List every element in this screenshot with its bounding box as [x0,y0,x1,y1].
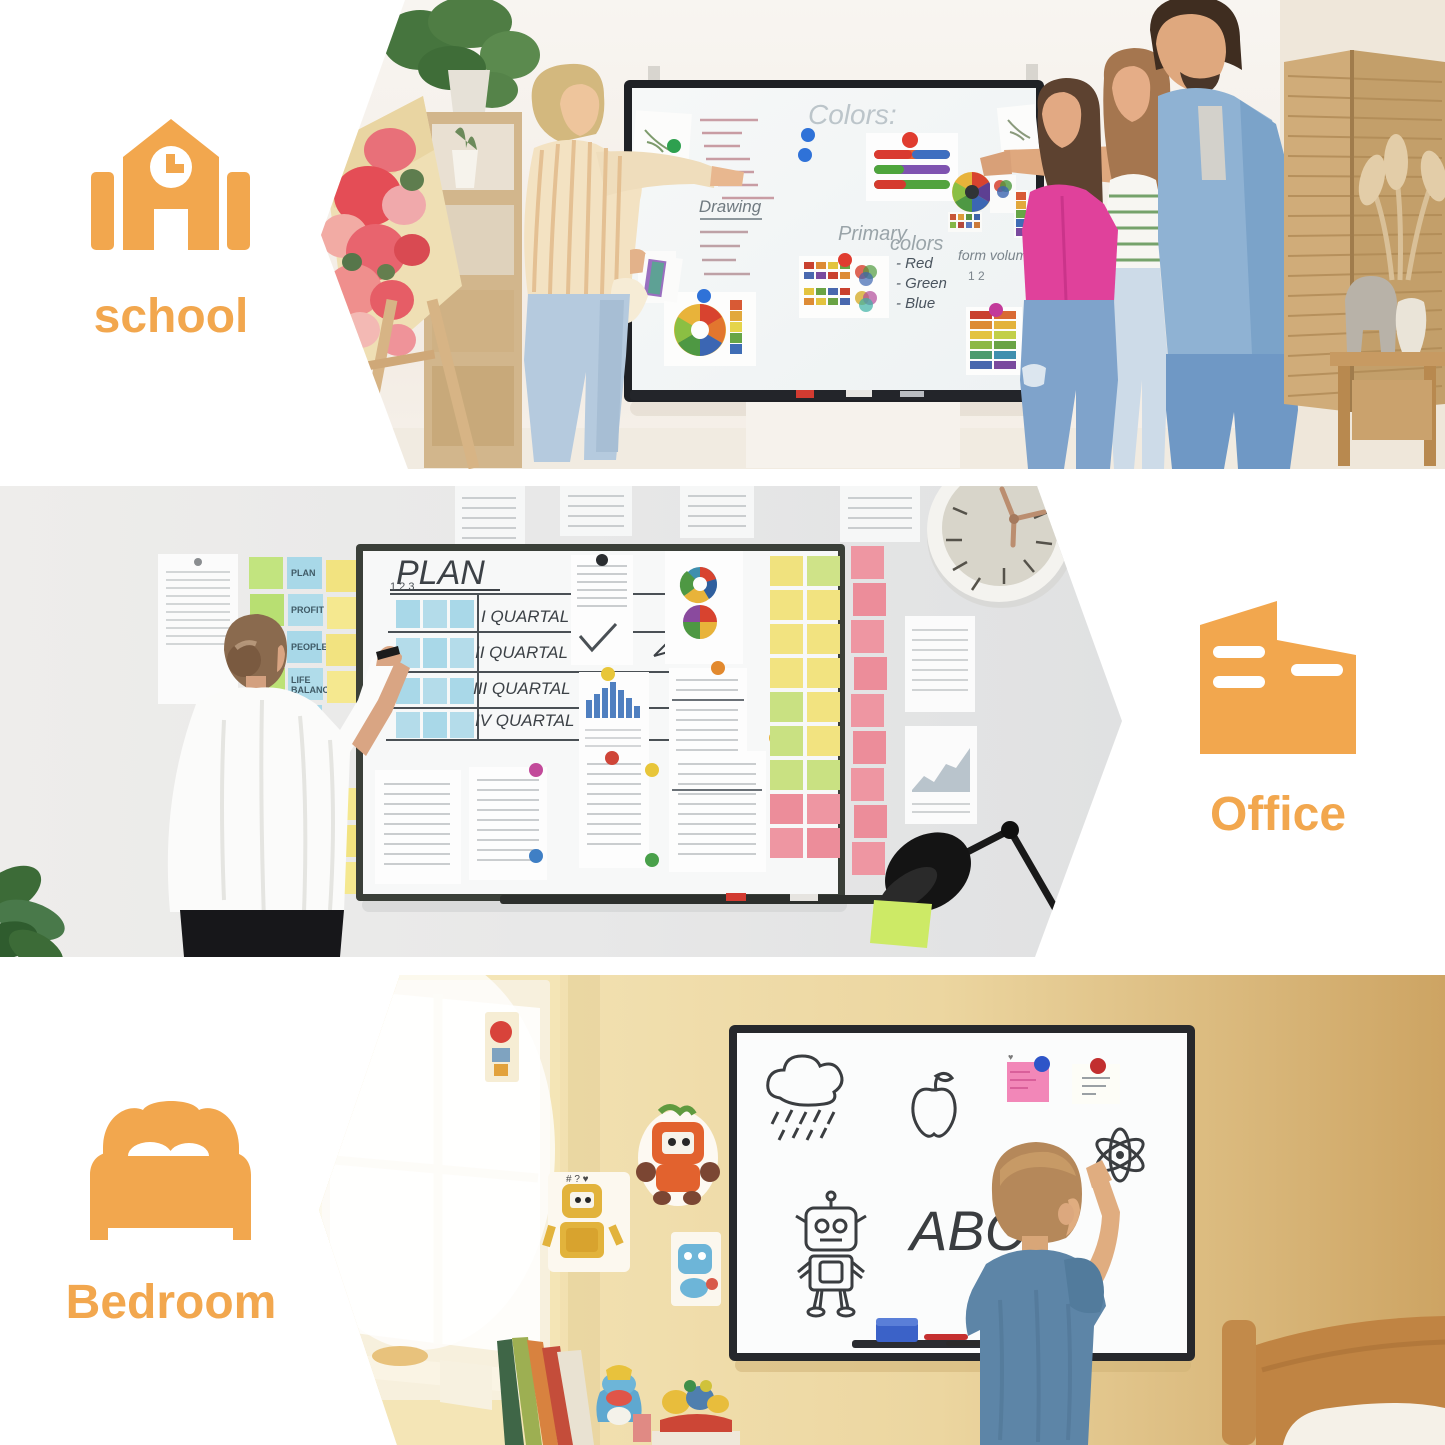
svg-text:school: school [94,290,249,343]
svg-text:PROFIT: PROFIT [291,605,325,615]
svg-text:- Green: - Green [896,275,947,292]
svg-text:II QUARTAL: II QUARTAL [475,643,568,662]
svg-text:Drawing: Drawing [699,197,762,216]
svg-text:colors: colors [890,233,943,255]
svg-text:Colors:: Colors: [808,99,897,130]
svg-text:1 2 3: 1 2 3 [390,581,414,593]
svg-text:♥: ♥ [1008,1052,1013,1062]
svg-text:- Red: - Red [896,255,933,272]
svg-text:1 2: 1 2 [968,269,985,283]
svg-text:Office: Office [1210,788,1346,841]
svg-text:PEOPLE: PEOPLE [291,642,328,652]
svg-text:III QUARTAL: III QUARTAL [473,679,571,698]
svg-text:I QUARTAL: I QUARTAL [481,607,569,626]
svg-text:PLAN: PLAN [291,568,316,578]
svg-text:- Blue: - Blue [896,295,935,312]
svg-text:Bedroom: Bedroom [66,1276,277,1329]
svg-text:LIFE: LIFE [291,675,311,685]
svg-text:# ? ♥: # ? ♥ [566,1174,589,1185]
svg-text:IV QUARTAL: IV QUARTAL [475,711,575,730]
